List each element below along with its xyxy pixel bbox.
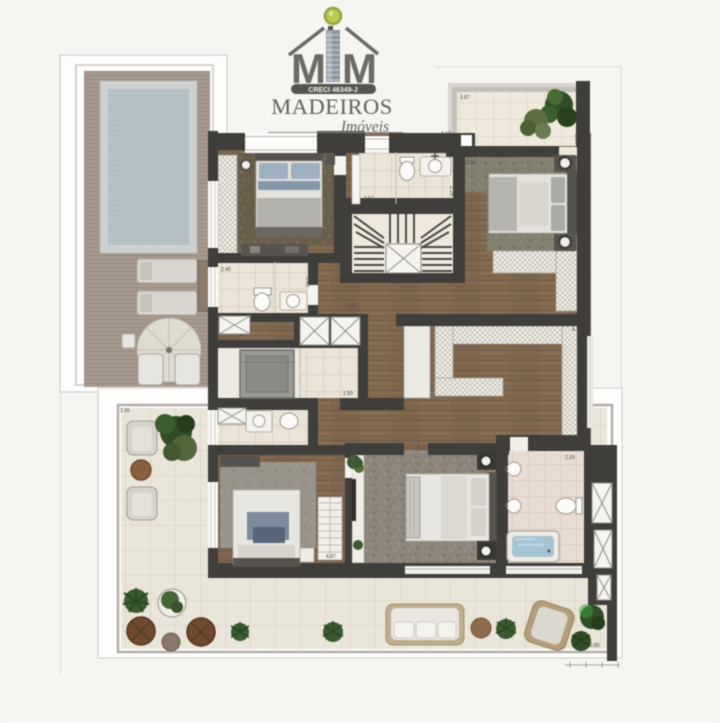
svg-text:2.40: 2.40: [221, 267, 231, 273]
svg-text:1.04: 1.04: [573, 134, 579, 144]
svg-text:1.50: 1.50: [343, 391, 353, 397]
svg-text:2.36: 2.36: [120, 408, 130, 414]
svg-text:1.27: 1.27: [347, 303, 357, 309]
svg-text:3.87: 3.87: [460, 95, 470, 101]
svg-text:4.12: 4.12: [441, 131, 451, 137]
svg-text:MADEIROS: MADEIROS: [271, 94, 393, 119]
svg-text:4.13: 4.13: [572, 327, 582, 333]
svg-text:13.80: 13.80: [587, 643, 600, 649]
svg-text:2.16: 2.16: [466, 160, 476, 166]
svg-text:2.57: 2.57: [364, 196, 374, 202]
svg-text:2.40: 2.40: [222, 449, 232, 455]
svg-text:4.47: 4.47: [326, 554, 336, 560]
svg-text:1.40: 1.40: [304, 277, 310, 287]
svg-text:CRECI 46349-J: CRECI 46349-J: [308, 87, 358, 94]
svg-text:2.19: 2.19: [598, 448, 604, 458]
svg-text:2.32: 2.32: [417, 446, 427, 452]
svg-text:2.28: 2.28: [448, 186, 454, 196]
svg-text:2.20: 2.20: [565, 455, 575, 461]
